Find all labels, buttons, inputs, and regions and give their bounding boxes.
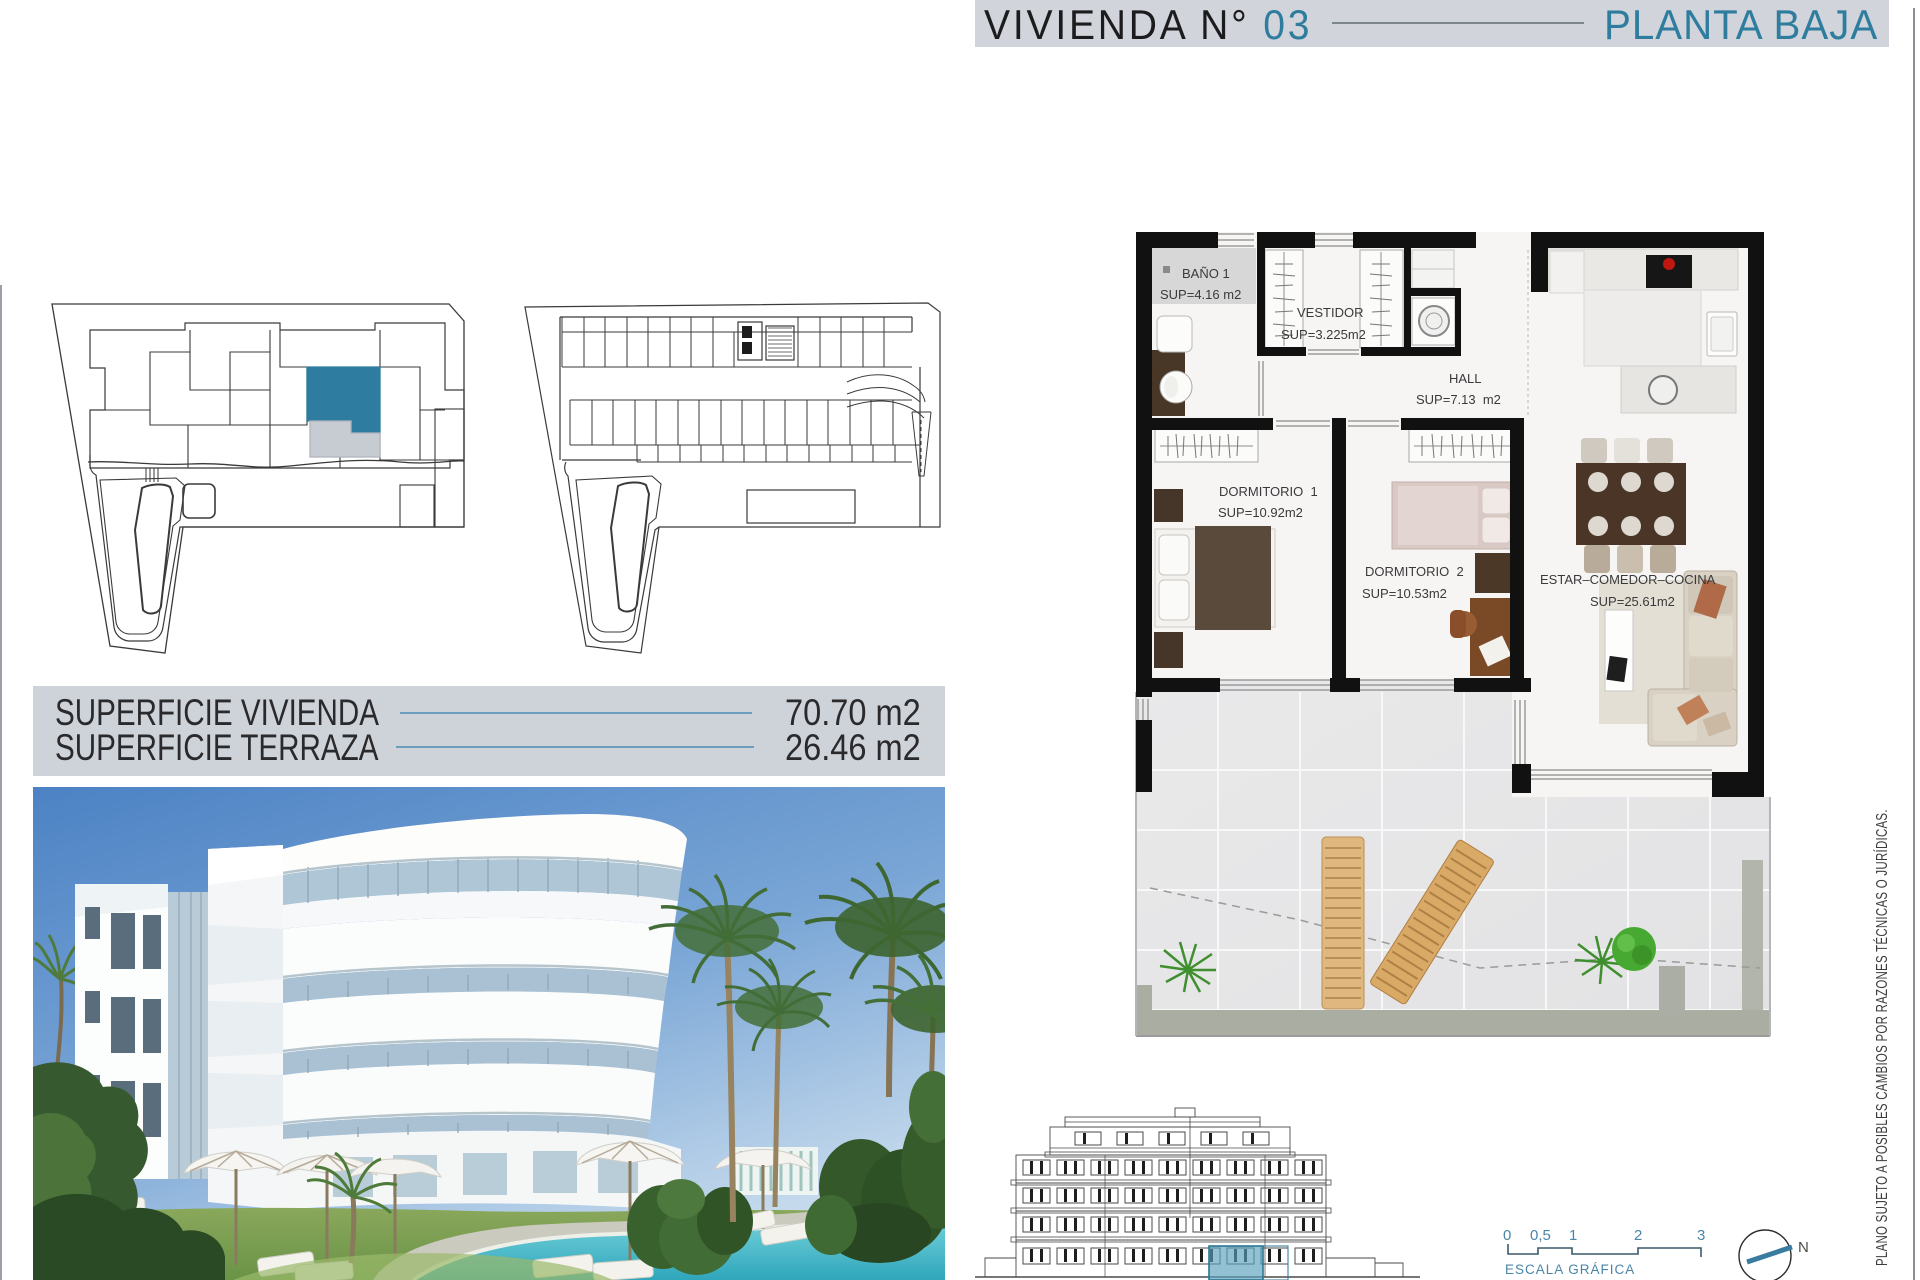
svg-text:SUP=3.225m2: SUP=3.225m2 — [1281, 327, 1366, 342]
svg-text:SUP=10.53m2: SUP=10.53m2 — [1362, 586, 1447, 601]
svg-text:BAÑO 1: BAÑO 1 — [1182, 266, 1230, 281]
svg-text:ESCALA GRÁFICA: ESCALA GRÁFICA — [1505, 1262, 1635, 1277]
svg-text:N: N — [1798, 1239, 1809, 1256]
svg-text:0: 0 — [1503, 1227, 1511, 1244]
svg-text:SUP=4.16 m2: SUP=4.16 m2 — [1160, 287, 1241, 302]
svg-text:VESTIDOR: VESTIDOR — [1297, 305, 1363, 320]
svg-text:SUP=7.13 m2: SUP=7.13 m2 — [1416, 392, 1501, 407]
svg-text:3: 3 — [1697, 1227, 1705, 1244]
svg-text:DORMITORIO 2: DORMITORIO 2 — [1365, 564, 1464, 579]
svg-text:SUP=10.92m2: SUP=10.92m2 — [1218, 505, 1303, 520]
svg-text:DORMITORIO 1: DORMITORIO 1 — [1219, 484, 1318, 499]
svg-text:HALL: HALL — [1449, 371, 1482, 386]
svg-text:SUP=25.61m2: SUP=25.61m2 — [1590, 594, 1675, 609]
svg-text:1: 1 — [1569, 1227, 1577, 1244]
svg-text:0,5: 0,5 — [1530, 1227, 1551, 1244]
svg-text:2: 2 — [1634, 1227, 1642, 1244]
svg-text:ESTAR–COMEDOR–COCINA: ESTAR–COMEDOR–COCINA — [1540, 572, 1716, 587]
